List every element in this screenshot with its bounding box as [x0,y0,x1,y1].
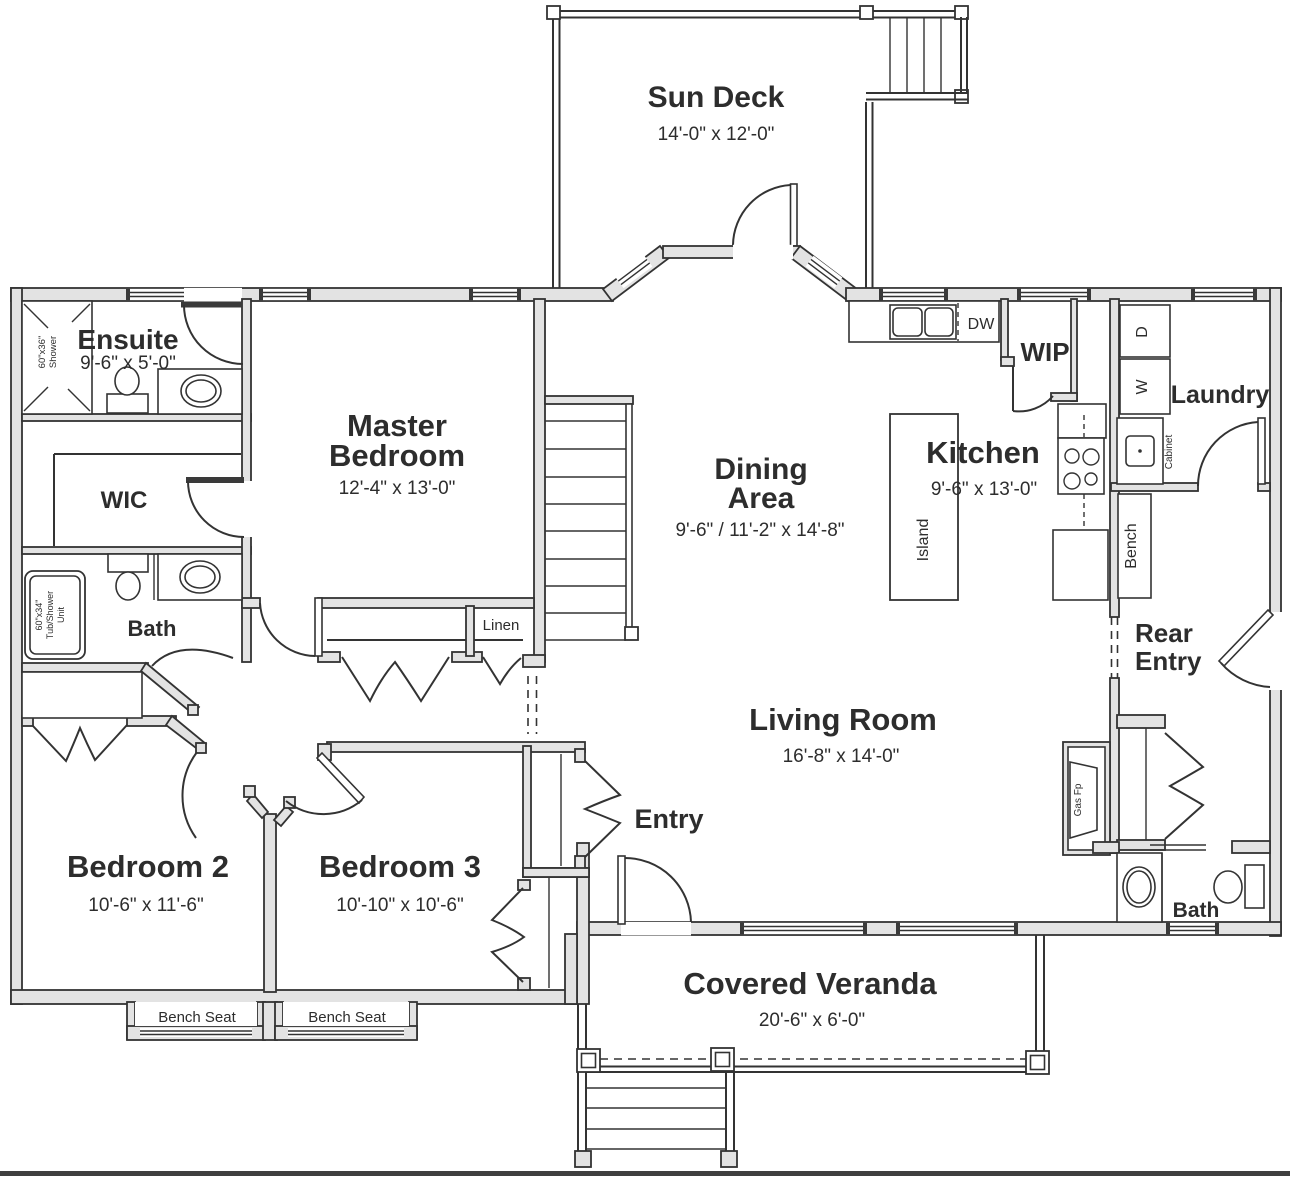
svg-text:Ensuite: Ensuite [77,324,178,355]
svg-text:Bath: Bath [128,616,177,641]
svg-text:W: W [1134,379,1151,395]
svg-text:9'-6" x 5'-0": 9'-6" x 5'-0" [80,353,176,374]
svg-text:16'-8" x 14'-0": 16'-8" x 14'-0" [783,746,900,767]
svg-text:Rear: Rear [1135,618,1193,648]
svg-text:WIC: WIC [101,487,148,514]
svg-text:14'-0" x 12'-0": 14'-0" x 12'-0" [658,124,775,145]
svg-text:Laundry: Laundry [1171,381,1270,409]
svg-text:12'-4" x 13'-0": 12'-4" x 13'-0" [339,478,456,499]
svg-text:Cabinet: Cabinet [1164,435,1175,470]
svg-text:Bedroom 2: Bedroom 2 [67,849,229,884]
svg-text:Living Room: Living Room [749,702,937,737]
svg-text:DW: DW [968,316,996,333]
svg-text:Area: Area [728,482,795,515]
svg-text:Bench: Bench [1123,523,1140,568]
svg-text:Bench Seat: Bench Seat [308,1009,386,1026]
svg-text:60"x36"Shower: 60"x36"Shower [37,336,59,369]
svg-text:Linen: Linen [483,617,520,634]
svg-text:Kitchen: Kitchen [926,435,1040,470]
svg-text:20'-6" x 6'-0": 20'-6" x 6'-0" [759,1010,865,1031]
svg-text:WIP: WIP [1020,337,1069,367]
svg-text:D: D [1134,326,1151,338]
svg-text:10'-10" x 10'-6": 10'-10" x 10'-6" [336,895,463,916]
svg-text:Bench Seat: Bench Seat [158,1009,236,1026]
svg-text:Bedroom: Bedroom [329,438,465,473]
svg-text:Entry: Entry [1135,646,1202,676]
svg-text:10'-6" x 11'-6": 10'-6" x 11'-6" [88,895,203,916]
svg-text:Island: Island [915,519,932,562]
svg-text:9'-6" x 13'-0": 9'-6" x 13'-0" [931,479,1037,500]
svg-text:Gas Fp: Gas Fp [1073,783,1084,816]
svg-text:9'-6" / 11'-2" x 14'-8": 9'-6" / 11'-2" x 14'-8" [675,520,844,541]
svg-text:Bath: Bath [1173,899,1220,922]
svg-text:Entry: Entry [634,804,703,834]
svg-text:Bedroom 3: Bedroom 3 [319,849,481,884]
svg-text:Covered Veranda: Covered Veranda [683,966,937,1001]
svg-text:Sun Deck: Sun Deck [648,81,785,114]
